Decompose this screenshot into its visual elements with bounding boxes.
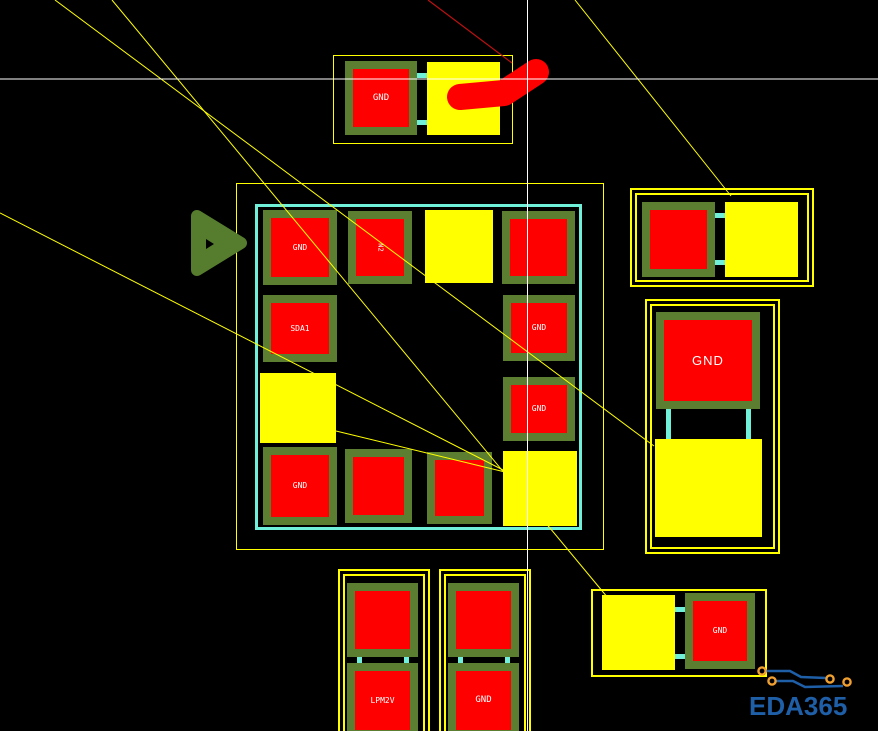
pad-label [355, 591, 410, 649]
pad-lpm2v[interactable]: LPM2V [347, 663, 418, 731]
pad-yellow[interactable] [503, 451, 577, 526]
pad-label [435, 460, 484, 516]
pad-label [650, 210, 707, 269]
pad-label: LPM2V [355, 671, 410, 730]
ratsnest-line [575, 0, 731, 196]
pad-label: GND [693, 601, 747, 661]
pad-gnd[interactable]: GND [685, 593, 755, 669]
pad-yellow[interactable] [602, 595, 675, 670]
logo-via-icon [768, 677, 775, 684]
pad-label: SDA1 [271, 303, 329, 354]
pad-gnd[interactable]: GND [263, 210, 337, 285]
pad-label: GND [511, 303, 567, 353]
logo-via-icon [843, 678, 850, 685]
pad-label [456, 591, 511, 649]
pad-label: GND [271, 218, 329, 277]
pad-red[interactable] [347, 583, 418, 657]
pad-n2[interactable]: N2 [348, 211, 412, 284]
direction-marker-icon [197, 216, 241, 270]
pad-label: GND [511, 385, 567, 433]
pad-label: GND [664, 320, 752, 401]
pad-gnd[interactable]: GND [263, 447, 337, 525]
pad-red[interactable] [642, 202, 715, 277]
pad-red[interactable] [448, 583, 519, 657]
pad-label [353, 457, 404, 515]
logo-trace [776, 681, 843, 687]
logo-via-icon [826, 675, 833, 682]
pad-yellow[interactable] [425, 210, 493, 283]
pad-label: GND [353, 69, 409, 127]
pad-yellow[interactable] [655, 439, 762, 537]
eda365-watermark: EDA365 [749, 691, 847, 722]
pad-gnd[interactable]: GND [656, 312, 760, 409]
pad-label: GND [271, 455, 329, 517]
pcb-canvas[interactable]: GND GND N2 SDA1 GND GND GND [0, 0, 878, 731]
logo-trace [766, 671, 826, 678]
pad-label: N2 [377, 243, 384, 251]
pad-label: GND [456, 671, 511, 730]
direction-marker-notch [206, 239, 214, 249]
pad-gnd[interactable]: GND [448, 663, 519, 731]
pad-gnd[interactable]: GND [345, 61, 417, 135]
pad-sda1[interactable]: SDA1 [263, 295, 337, 362]
pad-red[interactable] [345, 449, 412, 523]
pad-label [510, 219, 567, 276]
pad-gnd[interactable]: GND [503, 377, 575, 441]
pad-red[interactable] [427, 452, 492, 524]
route-guide-line [428, 0, 512, 63]
pad-yellow[interactable] [260, 373, 336, 443]
pad-gnd[interactable]: GND [503, 295, 575, 361]
pad-yellow[interactable] [427, 62, 500, 135]
pad-red[interactable] [502, 211, 575, 284]
pad-yellow[interactable] [725, 202, 798, 277]
